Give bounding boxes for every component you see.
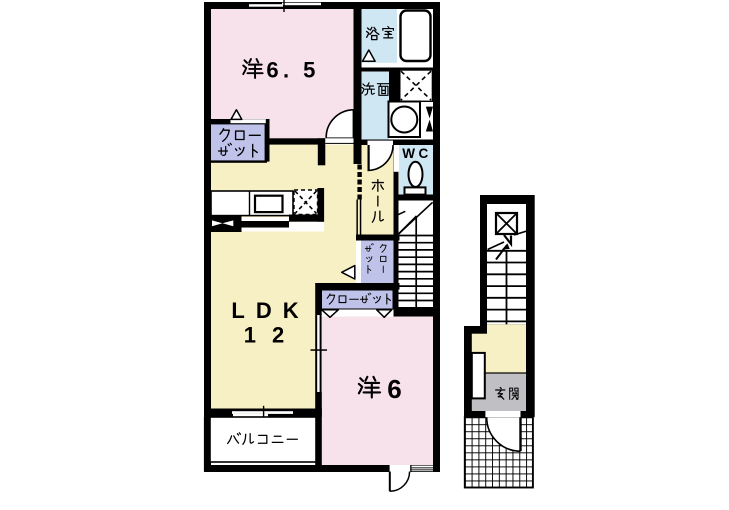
svg-text:6: 6 [387,374,401,404]
svg-text:WC: WC [402,146,432,161]
svg-text:.: . [283,58,289,83]
svg-text:LDK: LDK [231,298,309,323]
svg-text:12: 12 [244,322,300,347]
svg-text:5: 5 [303,58,315,83]
svg-text:6: 6 [266,58,278,83]
